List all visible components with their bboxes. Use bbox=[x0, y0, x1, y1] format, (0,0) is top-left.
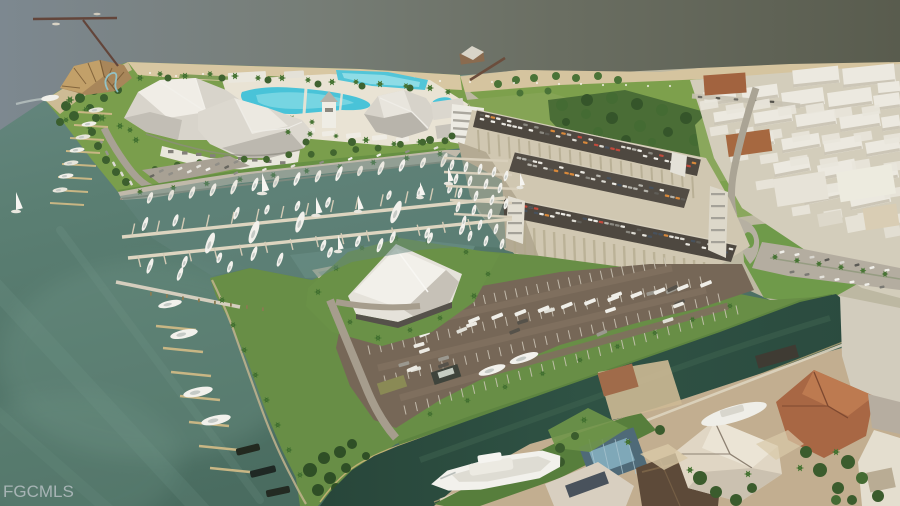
svg-text:FGCMLS: FGCMLS bbox=[3, 482, 74, 501]
